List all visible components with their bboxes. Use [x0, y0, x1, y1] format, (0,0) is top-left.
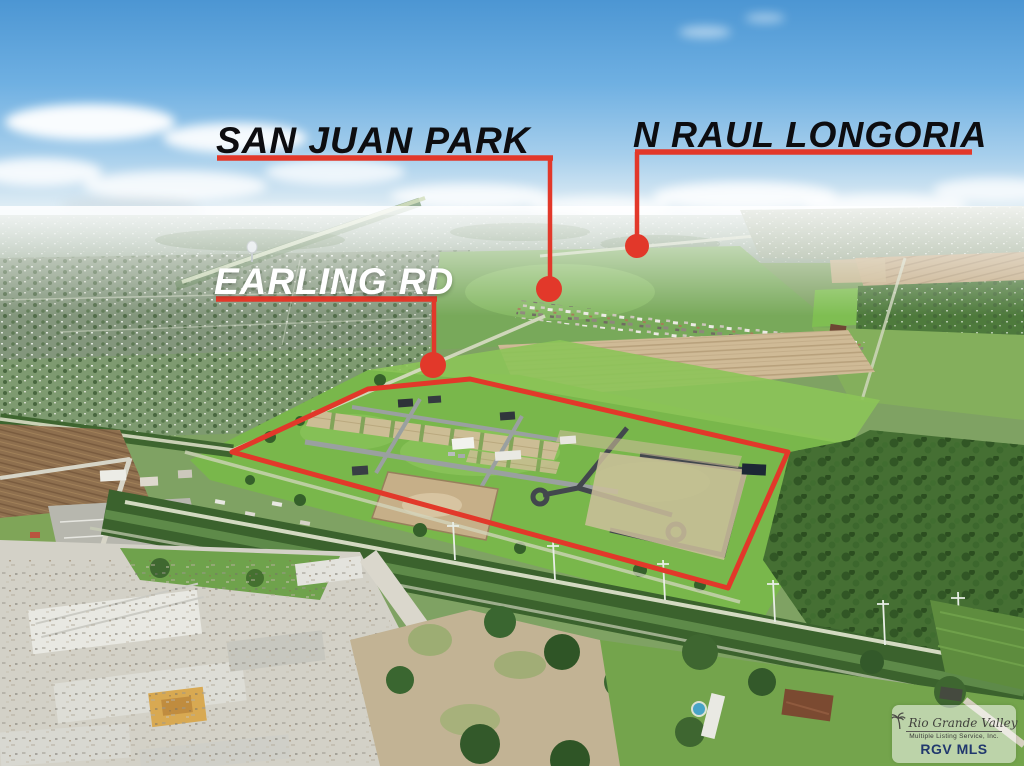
palm-tree-icon — [891, 712, 907, 730]
san-juan-park-dot — [536, 276, 562, 302]
label-n-raul-longoria: N RAUL LONGORIA — [633, 117, 987, 153]
landscape — [0, 198, 1024, 766]
horizon-haze — [0, 206, 1024, 316]
watermark-org-sub: Multiple Listing Service, Inc. — [909, 733, 999, 740]
n-raul-longoria-dot — [625, 234, 649, 258]
watermark-org-abbr: RGV MLS — [920, 741, 987, 757]
swimming-pool — [692, 702, 706, 716]
earling-rd-dot — [420, 352, 446, 378]
aerial-listing-photo: SAN JUAN PARK N RAUL LONGORIA EARLING RD… — [0, 0, 1024, 766]
label-earling-rd: EARLING RD — [214, 263, 454, 300]
label-san-juan-park: SAN JUAN PARK — [216, 122, 531, 159]
rgv-mls-watermark: Rio Grande Valley Multiple Listing Servi… — [892, 705, 1016, 763]
watermark-divider — [906, 731, 1002, 732]
watermark-org-name: Rio Grande Valley — [909, 716, 1018, 730]
